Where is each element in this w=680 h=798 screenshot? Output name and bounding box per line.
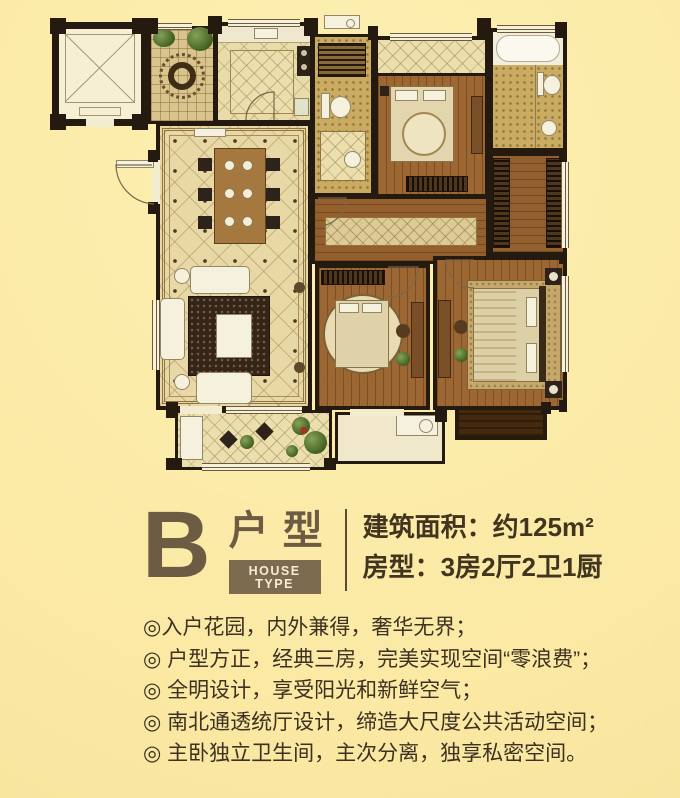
- house-type-badge: HOUSE TYPE: [229, 560, 321, 594]
- unit-type-label: 户型: [229, 511, 337, 551]
- feature-item: ◎ 户型方正，经典三房，完美实现空间“零浪费”；: [143, 644, 608, 676]
- unit-letter: B: [142, 503, 211, 589]
- area-line: 建筑面积：约125m²: [363, 507, 603, 547]
- feature-item: ◎ 全明设计，享受阳光和新鲜空气；: [143, 675, 608, 707]
- feature-item: ◎ 南北通透统厅设计，缔造大尺度公共活动空间；: [143, 707, 608, 739]
- floor-plan: [50, 8, 570, 478]
- unit-title-block: B 户型 HOUSE TYPE 建筑面积：约125m² 房型：3房2厅2卫1厨: [142, 503, 602, 594]
- feature-item: ◎入户花园，内外兼得，奢华无界；: [143, 612, 608, 644]
- feature-item: ◎ 主卧独立卫生间，主次分离，独享私密空间。: [143, 738, 608, 770]
- divider: [345, 509, 347, 591]
- feature-list: ◎入户花园，内外兼得，奢华无界； ◎ 户型方正，经典三房，完美实现空间“零浪费”…: [143, 612, 608, 770]
- flyer-page: B 户型 HOUSE TYPE 建筑面积：约125m² 房型：3房2厅2卫1厨 …: [0, 0, 680, 798]
- door-arcs: [50, 8, 570, 478]
- rooms-line: 房型：3房2厅2卫1厨: [363, 547, 603, 587]
